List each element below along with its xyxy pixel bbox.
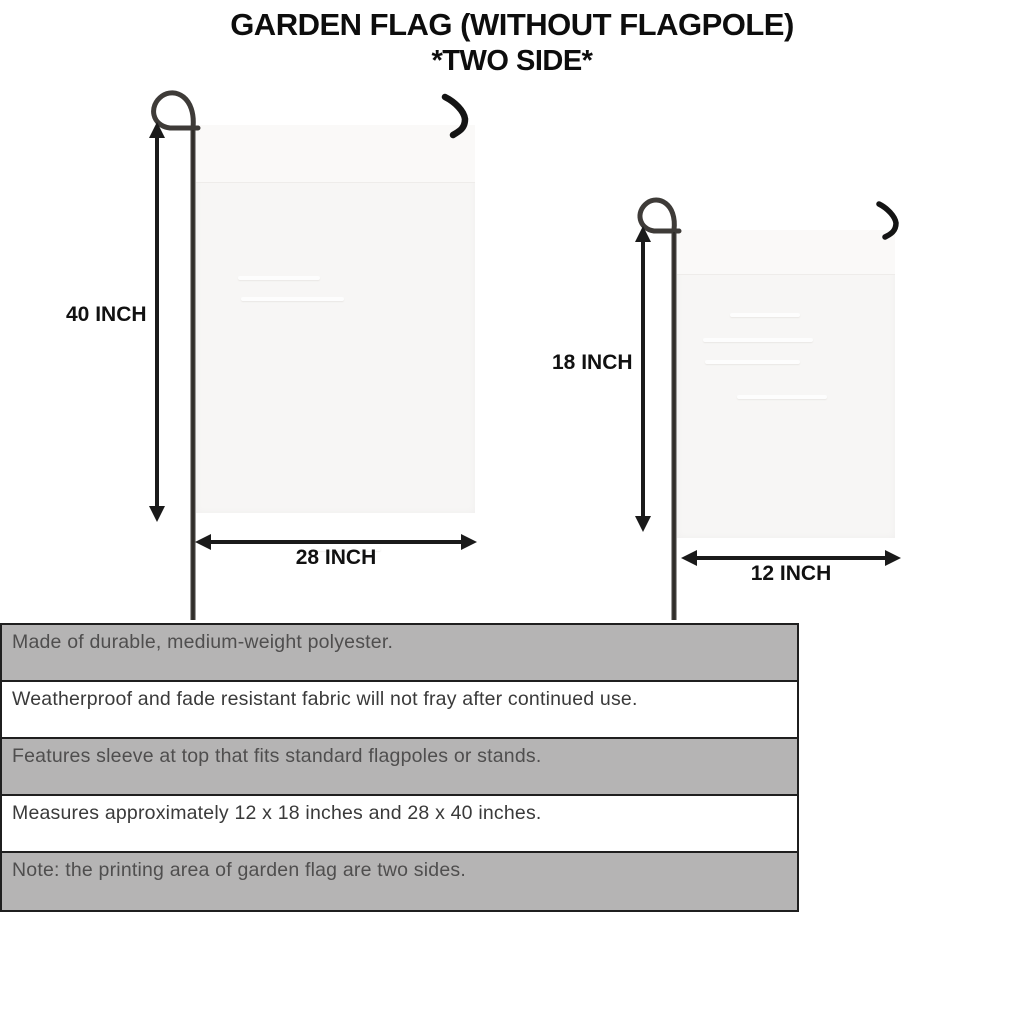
large-height-dimension-arrow bbox=[146, 122, 168, 522]
page-title: GARDEN FLAG (WITHOUT FLAGPOLE) *TWO SIDE… bbox=[0, 6, 1024, 79]
feature-row-text: Measures approximately 12 x 18 inches an… bbox=[12, 802, 542, 824]
feature-row: Features sleeve at top that fits standar… bbox=[2, 739, 797, 796]
small-flag-width-label: 12 INCH bbox=[681, 562, 901, 586]
small-flag-height-label: 18 INCH bbox=[552, 351, 633, 375]
hook-icon bbox=[870, 198, 915, 246]
feature-row: Weatherproof and fade resistant fabric w… bbox=[2, 682, 797, 739]
feature-row: Note: the printing area of garden flag a… bbox=[2, 853, 797, 910]
page-title-line-1: GARDEN FLAG (WITHOUT FLAGPOLE) bbox=[0, 6, 1024, 43]
feature-row-text: Features sleeve at top that fits standar… bbox=[12, 745, 541, 767]
feature-row: Measures approximately 12 x 18 inches an… bbox=[2, 796, 797, 853]
large-flag-width-label: 28 INCH bbox=[195, 546, 477, 570]
small-height-dimension-arrow bbox=[632, 226, 654, 532]
page-title-line-2: *TWO SIDE* bbox=[0, 44, 1024, 79]
large-flag-height-label: 40 INCH bbox=[66, 303, 147, 327]
feature-row-text: Made of durable, medium-weight polyester… bbox=[12, 631, 393, 653]
features-table: Made of durable, medium-weight polyester… bbox=[0, 623, 799, 912]
feature-row-text: Note: the printing area of garden flag a… bbox=[12, 859, 466, 881]
feature-row: Made of durable, medium-weight polyester… bbox=[2, 625, 797, 682]
feature-row-text: Weatherproof and fade resistant fabric w… bbox=[12, 688, 638, 710]
hook-icon bbox=[435, 90, 485, 145]
